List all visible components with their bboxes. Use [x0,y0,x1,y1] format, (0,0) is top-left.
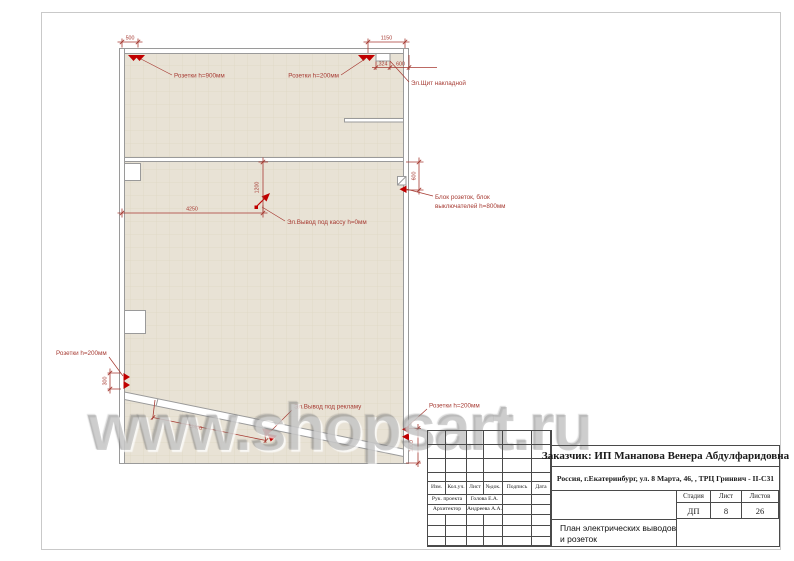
empty-cell [428,473,446,482]
partition-wall [345,119,404,123]
empty-cell [532,431,551,445]
empty-cell [428,526,446,537]
empty-cell [446,526,467,537]
empty-cell [503,515,532,526]
empty-cell [503,505,532,515]
empty-cell [428,515,446,526]
title-block-lower: План электрических выводов и розеток Ста… [552,491,779,546]
label-cash-outlet: Эл.Вывод под кассу h=0мм [287,219,367,226]
sheets-header: Листов [742,491,779,503]
title-block-right: Заказчик: ИП Манапова Венера Абдулфаридо… [552,445,780,547]
title-block: Изм. Кол.уч. Лист №док. Подпись Дата Рук… [427,430,780,547]
role-name: Голова Е.А. [467,495,503,505]
sheets-value: 26 [742,503,779,519]
empty-cell [428,537,446,546]
dim-300-value: 300 [103,377,109,386]
empty-cell [503,526,532,537]
empty-cell [446,445,467,459]
wall-niche-lower [125,311,146,334]
col-header-data: Дата [532,482,551,495]
stage-value: ДП [677,503,711,519]
empty-cell [467,515,484,526]
empty-cell [428,431,446,445]
empty-cell [532,515,551,526]
top-wall [120,49,409,54]
empty-cell [503,431,532,445]
dim-1200-value: 1200 [255,182,261,194]
label-block-line2: выключателей h=800мм [435,202,506,210]
dim-500-value: 500 [126,36,135,42]
empty-cell [467,537,484,546]
label-sockets-900: Розетки h=900мм [174,73,225,80]
label-panel: Эл.Щит накладной [411,79,466,87]
empty-cell [428,459,446,473]
empty-cell [484,459,503,473]
col-header-koluch: Кол.уч. [446,482,467,495]
empty-cell [467,459,484,473]
project-title-line2: и розеток [560,534,677,545]
empty-cell [446,515,467,526]
empty-cell [467,526,484,537]
empty-cell [446,473,467,482]
empty-cell [532,537,551,546]
empty-cell [484,515,503,526]
col-header-podpis: Подпись [503,482,532,495]
label-sockets-200-top: Розетки h=200мм [288,73,339,80]
empty-cell [467,445,484,459]
dim-1150-value: 1150 [381,36,392,42]
empty-cell [428,445,446,459]
customer-line: Заказчик: ИП Манапова Венера Абдулфаридо… [552,446,779,467]
col-header-ndok: №док. [484,482,503,495]
dim-324-value: 324 [379,62,388,68]
col-header-list: Лист [467,482,484,495]
label-block-line1: Блок розеток, блок [435,193,490,201]
role-label: Архитектор [428,505,467,515]
empty-cell [503,495,532,505]
empty-cell [446,431,467,445]
empty-cell [503,445,532,459]
empty-cell [532,473,551,482]
dim-600-top-value: 600 [396,62,405,68]
empty-cell [532,505,551,515]
empty-cell [503,473,532,482]
stage-table: Стадия Лист Листов ДП 8 26 [676,491,779,546]
empty-cell [467,431,484,445]
empty-cell [446,459,467,473]
sheet-header: Лист [711,491,742,503]
empty-cell [484,537,503,546]
project-title-line1: План электрических выводов [560,523,677,534]
dim-600-right-value: 600 [412,172,418,181]
empty-cell [503,459,532,473]
label-sockets-200-left: Розетки h=200мм [56,350,107,357]
col-header-izm: Изм. [428,482,446,495]
project-title: План электрических выводов и розеток [552,519,677,546]
stage-header: Стадия [677,491,711,503]
empty-cell [467,473,484,482]
empty-cell [532,495,551,505]
role-name: Андреева А.А. [467,505,503,515]
dim-4250-value: 4250 [186,207,198,213]
empty-cell [484,445,503,459]
empty-cell [484,473,503,482]
electrical-panel-box [376,54,390,62]
empty-cell [677,519,779,546]
empty-cell [503,537,532,546]
empty-cell [446,537,467,546]
empty-cell [484,526,503,537]
role-label: Рук. проекта [428,495,467,505]
wall-niche-upper [125,164,141,181]
revision-table: Изм. Кол.уч. Лист №док. Подпись Дата Рук… [427,430,552,547]
sheet-value: 8 [711,503,742,519]
dim-500: 500 [118,36,143,48]
empty-cell [532,526,551,537]
address-line: Россия, г.Екатеринбург, ул. 8 Марта, 46,… [552,467,779,491]
empty-cell [484,431,503,445]
